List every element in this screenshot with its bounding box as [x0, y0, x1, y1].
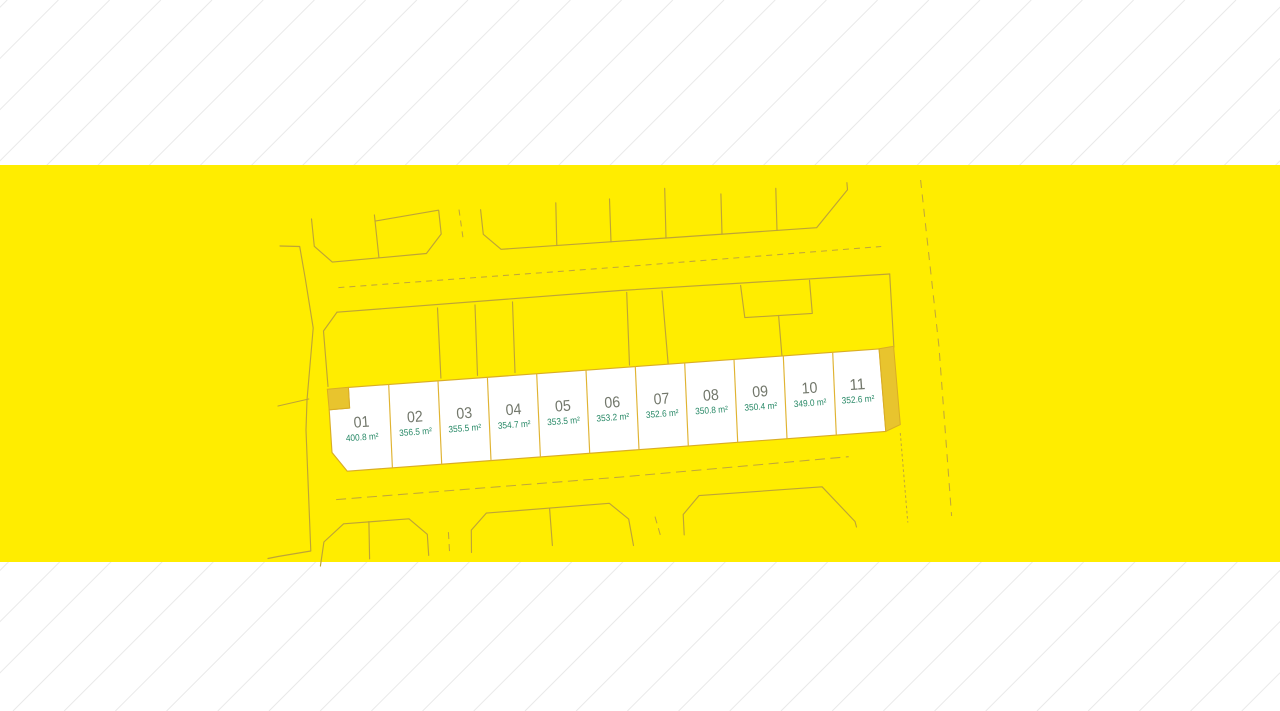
svg-text:08: 08 — [702, 387, 719, 405]
svg-text:02: 02 — [406, 408, 423, 426]
svg-text:05: 05 — [554, 398, 571, 416]
svg-text:03: 03 — [456, 405, 473, 423]
svg-text:11: 11 — [849, 376, 866, 394]
svg-text:01: 01 — [353, 414, 370, 432]
svg-text:10: 10 — [801, 380, 818, 398]
svg-text:09: 09 — [752, 383, 769, 401]
svg-text:04: 04 — [505, 401, 522, 419]
svg-text:07: 07 — [653, 390, 670, 408]
svg-text:06: 06 — [604, 394, 621, 412]
